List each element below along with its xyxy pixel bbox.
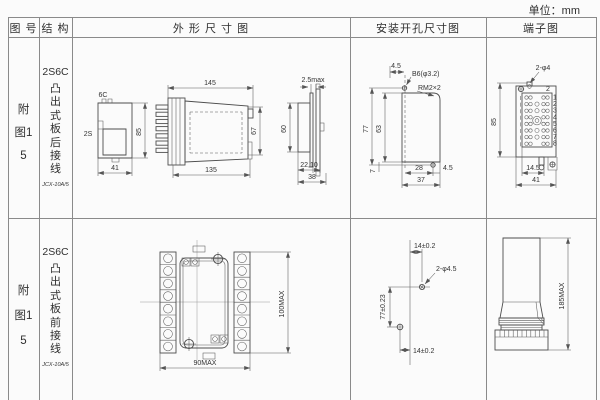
row1-mounting-drawing: 4.5 B6(φ3.2) RM2×2 77 63 7 28 4.5 37 bbox=[350, 37, 486, 218]
mounting-width-inner-dim: 28 bbox=[415, 165, 423, 172]
panel-hole-label: 2-φ4.5 bbox=[436, 266, 457, 273]
terminal-contact-grid bbox=[525, 96, 549, 146]
assembly-height-dim: 185MAX bbox=[559, 282, 566, 309]
mounting-height-inner-dim: 63 bbox=[376, 125, 383, 133]
row2-model: 2S6C bbox=[39, 246, 72, 258]
row2-socket-code: JCX-10A/5 bbox=[39, 362, 72, 368]
terminal-corner-label: 2 bbox=[546, 86, 550, 93]
row1-model: 2S6C bbox=[39, 66, 72, 78]
mounting-right-dim: 4.5 bbox=[443, 165, 453, 172]
bracket-top-label: 6C bbox=[99, 92, 108, 99]
rear-inner-dim: 22,10 bbox=[300, 162, 318, 169]
relay-side-view: 145 135 67 bbox=[156, 80, 263, 178]
row1-outline-drawing: 6C 2S 85 41 bbox=[72, 37, 350, 218]
row2-outline-drawing: 100MAX 90MAX bbox=[72, 218, 350, 398]
mounting-thread-label: RM2×2 bbox=[418, 85, 441, 92]
header-structure: 结 构 bbox=[39, 20, 72, 36]
rear-top-dim: 2.5max bbox=[302, 77, 325, 84]
header-mounting: 安装开孔尺寸图 bbox=[350, 20, 486, 36]
row1-socket-code: JCX-10A/5 bbox=[39, 182, 72, 188]
terminal-pitch-dim: 14.5 bbox=[526, 165, 540, 172]
panel-top-dim: 14±0.2 bbox=[414, 243, 435, 250]
terminal-block-view: 2-φ4 2 1 2 3 bbox=[491, 65, 557, 188]
row2-structure: 2S6C 凸出式板前接线 JCX-10A/5 bbox=[39, 246, 72, 368]
row1-structure: 2S6C 凸出式板后接线 JCX-10A/5 bbox=[39, 66, 72, 188]
panel-drilling-view: 14±0.2 2-φ4.5 77±0.23 14±0.2 bbox=[380, 240, 457, 365]
mounting-offset-dim: 7 bbox=[370, 169, 377, 173]
socket-front-view: 100MAX 90MAX bbox=[140, 240, 291, 371]
bracket-left-label: 2S bbox=[84, 131, 93, 138]
row2-fig-no-text: 附图15 bbox=[14, 279, 34, 354]
rear-height-dim: 60 bbox=[281, 125, 288, 133]
terminal-pin-numbers: 1 2 3 4 5 6 7 8 bbox=[553, 95, 557, 148]
table-border-top bbox=[8, 17, 596, 18]
socket-height-dim: 100MAX bbox=[279, 290, 286, 317]
side-top-dim: 145 bbox=[204, 80, 216, 87]
bracket-height-dim: 85 bbox=[136, 128, 143, 136]
row2-mounting-drawing: 14±0.2 2-φ4.5 77±0.23 14±0.2 bbox=[350, 218, 486, 398]
mounting-top-dim: 4.5 bbox=[391, 63, 401, 70]
bracket-profile-view: 6C 2S 85 41 bbox=[84, 92, 148, 176]
terminal-width-dim: 41 bbox=[532, 177, 540, 184]
mounting-cutout-view: 4.5 B6(φ3.2) RM2×2 77 63 7 28 4.5 37 bbox=[363, 63, 453, 188]
relay-with-socket-profile: 185MAX bbox=[495, 238, 571, 350]
mounting-height-outer-dim: 77 bbox=[363, 125, 370, 133]
mounting-hole-label: B6(φ3.2) bbox=[412, 71, 440, 78]
side-bottom-dim: 135 bbox=[205, 167, 217, 174]
side-height-dim: 67 bbox=[251, 127, 258, 135]
socket-width-dim: 90MAX bbox=[194, 360, 217, 367]
terminal-height-dim: 85 bbox=[491, 118, 498, 126]
table-border-right bbox=[596, 17, 597, 400]
header-terminal: 端子图 bbox=[486, 20, 596, 36]
mounting-width-outer-dim: 37 bbox=[417, 177, 425, 184]
rear-width-dim: 38 bbox=[308, 174, 316, 181]
row2-terminal-drawing: 185MAX bbox=[486, 218, 596, 398]
header-outline: 外 形 尺 寸 图 bbox=[72, 20, 350, 36]
row1-terminal-drawing: 2-φ4 2 1 2 3 bbox=[486, 37, 596, 218]
panel-height-dim: 77±0.23 bbox=[380, 294, 387, 319]
unit-label: 单位：mm bbox=[470, 2, 580, 18]
row2-fig-no: 附图15 bbox=[8, 279, 39, 354]
bracket-width-dim: 41 bbox=[111, 165, 119, 172]
terminal-holes-label: 2-φ4 bbox=[536, 65, 551, 72]
rear-flange-view: 2.5max 60 22,10 38 bbox=[281, 77, 326, 185]
spec-sheet-page: 单位：mm 图 号 结 构 外 形 尺 寸 图 安装开孔尺寸图 端子图 附图15… bbox=[0, 0, 600, 400]
row1-mount-type: 凸出式板后接线 bbox=[48, 83, 63, 177]
panel-bottom-dim: 14±0.2 bbox=[413, 348, 434, 355]
row1-fig-no-text: 附图15 bbox=[14, 99, 34, 168]
header-fig-no: 图 号 bbox=[8, 20, 39, 36]
row1-fig-no: 附图15 bbox=[8, 99, 39, 168]
row2-mount-type: 凸出式板前接线 bbox=[48, 263, 63, 357]
pin-8: 8 bbox=[553, 141, 557, 148]
